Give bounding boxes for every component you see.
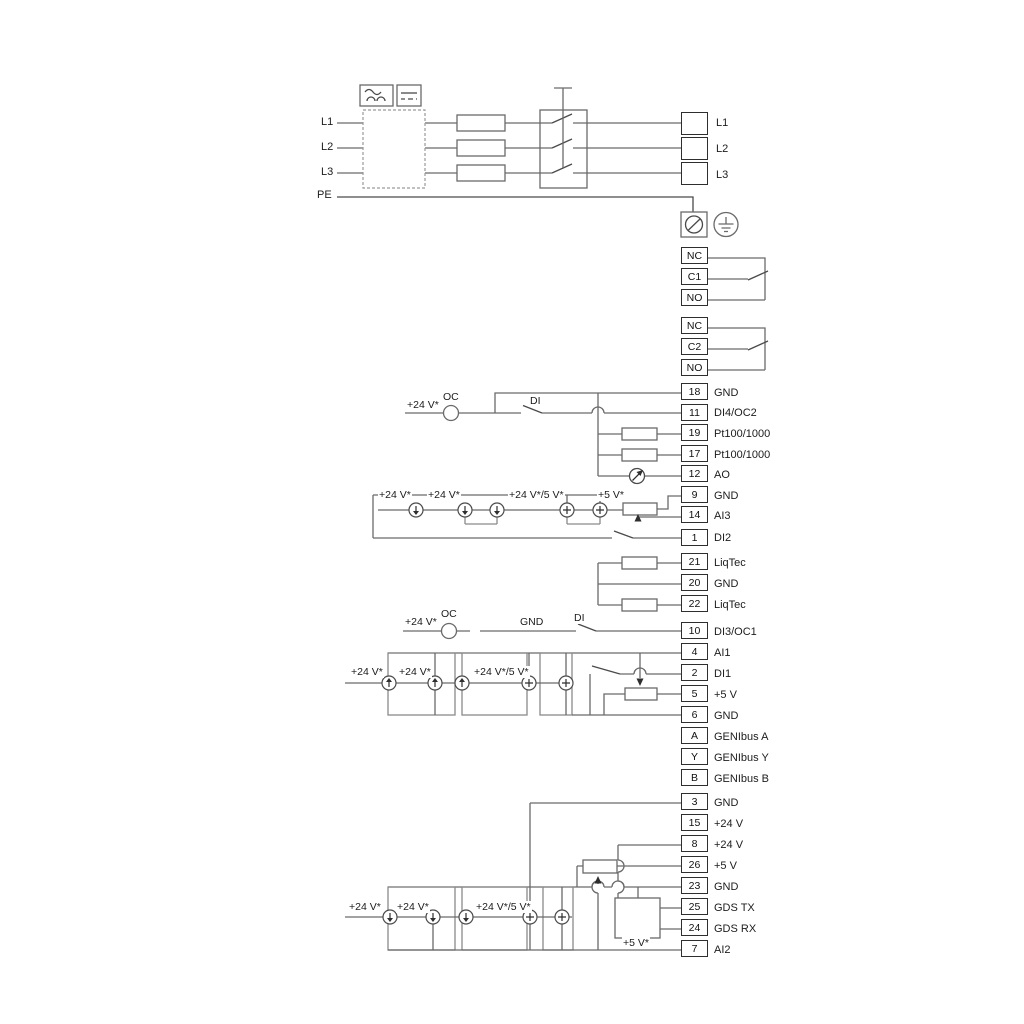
terminal-label: GND	[714, 490, 738, 502]
terminal-15: 15	[681, 814, 708, 831]
terminal-label: GENIbus B	[714, 773, 769, 785]
terminal-L1	[681, 112, 708, 135]
wiring-diagram: L1 L2 L3 PE L1 L2 L3 NC C1 NO NC C2 NO 1…	[0, 0, 1024, 1024]
terminal-label: GND	[714, 578, 738, 590]
potentiometer	[583, 860, 617, 873]
supply-label: +24 V*	[350, 666, 384, 678]
supply-label: +24 V*/5 V*	[473, 666, 530, 678]
terminal-label: GDS RX	[714, 923, 756, 935]
ground-icon	[714, 213, 738, 237]
terminal-label: +5 V	[714, 860, 737, 872]
supply-label: +24 V*/5 V*	[508, 489, 565, 501]
terminal-label: GND	[714, 387, 738, 399]
terminal-5: 5	[681, 685, 708, 702]
terminal-17: 17	[681, 445, 708, 462]
terminal-relay1-nc: NC	[681, 247, 708, 264]
terminal-label: LiqTec	[714, 557, 746, 569]
terminal-label: +24 V	[714, 818, 743, 830]
terminal-label: AI1	[714, 647, 731, 659]
terminal-relay1-no: NO	[681, 289, 708, 306]
terminal-label: GDS TX	[714, 902, 755, 914]
terminal-Y: Y	[681, 748, 708, 765]
terminal-label: L2	[716, 143, 728, 155]
relay2-contact	[707, 328, 768, 370]
supply-label: +5 V*	[597, 489, 625, 501]
terminal-label: Pt100/1000	[714, 428, 770, 440]
fuse	[457, 115, 505, 181]
ai1-wiper-arrow	[637, 679, 644, 687]
ac-symbol-icon	[360, 85, 393, 106]
terminal-label: AI2	[714, 944, 731, 956]
supply-label: +5 V*	[622, 937, 650, 949]
terminal-label: GND	[714, 797, 738, 809]
terminal-2: 2	[681, 664, 708, 681]
terminal-1: 1	[681, 529, 708, 546]
terminal-9: 9	[681, 486, 708, 503]
oc-output-circle	[444, 406, 459, 421]
supply-label: +24 V*	[406, 399, 440, 411]
pt100-resistor	[622, 428, 657, 440]
terminal-label: L1	[716, 117, 728, 129]
terminal-6: 6	[681, 706, 708, 723]
terminal-relay2-no: NO	[681, 359, 708, 376]
mains-wiring	[337, 123, 693, 212]
liqtec-sensor-resistor	[622, 599, 657, 611]
terminal-label: AO	[714, 469, 730, 481]
dc-symbol-icon	[397, 85, 421, 106]
terminal-label: +24 V	[714, 839, 743, 851]
terminal-label: Pt100/1000	[714, 449, 770, 461]
mains-line-label: L1	[320, 116, 334, 128]
supply-label: +24 V*	[348, 901, 382, 913]
terminal-label: DI2	[714, 532, 731, 544]
pt100-resistor	[622, 449, 657, 461]
gds-sensor-box	[615, 898, 660, 938]
terminal-label: AI3	[714, 510, 731, 522]
terminal-22: 22	[681, 595, 708, 612]
terminal-A: A	[681, 727, 708, 744]
terminal-20: 20	[681, 574, 708, 591]
terminal-14: 14	[681, 506, 708, 523]
terminal-label: GND	[714, 710, 738, 722]
ai2-section-wiring	[345, 803, 683, 950]
terminal-12: 12	[681, 465, 708, 482]
terminal-label: DI3/OC1	[714, 626, 757, 638]
terminal-label: +5 V	[714, 689, 737, 701]
terminal-23: 23	[681, 877, 708, 894]
oc-output-circle	[442, 624, 457, 639]
liqtec-wiring	[598, 557, 683, 611]
terminal-B: B	[681, 769, 708, 786]
supply-label: +24 V*	[396, 901, 430, 913]
terminal-21: 21	[681, 553, 708, 570]
terminal-relay2-nc: NC	[681, 317, 708, 334]
terminal-label: GND	[714, 881, 738, 893]
supply-label: +24 V*	[398, 666, 432, 678]
terminal-label: LiqTec	[714, 599, 746, 611]
supply-label: +24 V*/5 V*	[475, 901, 532, 913]
terminal-3: 3	[681, 793, 708, 810]
potentiometer	[625, 688, 657, 700]
emc-filter-box	[363, 110, 425, 188]
terminal-label: GENIbus A	[714, 731, 768, 743]
di-label: DI	[529, 395, 542, 407]
terminal-19: 19	[681, 424, 708, 441]
terminal-18: 18	[681, 383, 708, 400]
mains-line-label: L3	[320, 166, 334, 178]
oc-label: OC	[440, 608, 458, 620]
terminal-24: 24	[681, 919, 708, 936]
mains-line-label: L2	[320, 141, 334, 153]
analog-output-gauge-icon	[630, 469, 645, 484]
supply-label: +24 V*	[404, 616, 438, 628]
oc-label: OC	[442, 391, 460, 403]
gnd-label: GND	[519, 616, 544, 628]
di4-row-wiring	[405, 393, 683, 476]
terminal-L3	[681, 162, 708, 185]
terminal-10: 10	[681, 622, 708, 639]
liqtec-sensor-resistor	[622, 557, 657, 569]
terminal-label: DI4/OC2	[714, 407, 757, 419]
terminal-11: 11	[681, 404, 708, 421]
pe-screw-terminal-icon	[681, 212, 707, 237]
terminal-label: L3	[716, 169, 728, 181]
terminal-label: DI1	[714, 668, 731, 680]
potentiometer	[623, 503, 657, 515]
ai2-wiper-arrow	[595, 876, 602, 884]
terminal-L2	[681, 137, 708, 160]
terminal-26: 26	[681, 856, 708, 873]
terminal-relay2-c2: C2	[681, 338, 708, 355]
supply-label: +24 V*	[427, 489, 461, 501]
supply-label: +24 V*	[378, 489, 412, 501]
terminal-relay1-c1: C1	[681, 268, 708, 285]
terminal-7: 7	[681, 940, 708, 957]
relay1-contact	[707, 258, 768, 300]
terminal-8: 8	[681, 835, 708, 852]
wiring-artwork	[0, 0, 1024, 1024]
mains-line-label: PE	[316, 189, 333, 201]
terminal-4: 4	[681, 643, 708, 660]
terminal-label: GENIbus Y	[714, 752, 769, 764]
terminal-25: 25	[681, 898, 708, 915]
di-label: DI	[573, 612, 586, 624]
